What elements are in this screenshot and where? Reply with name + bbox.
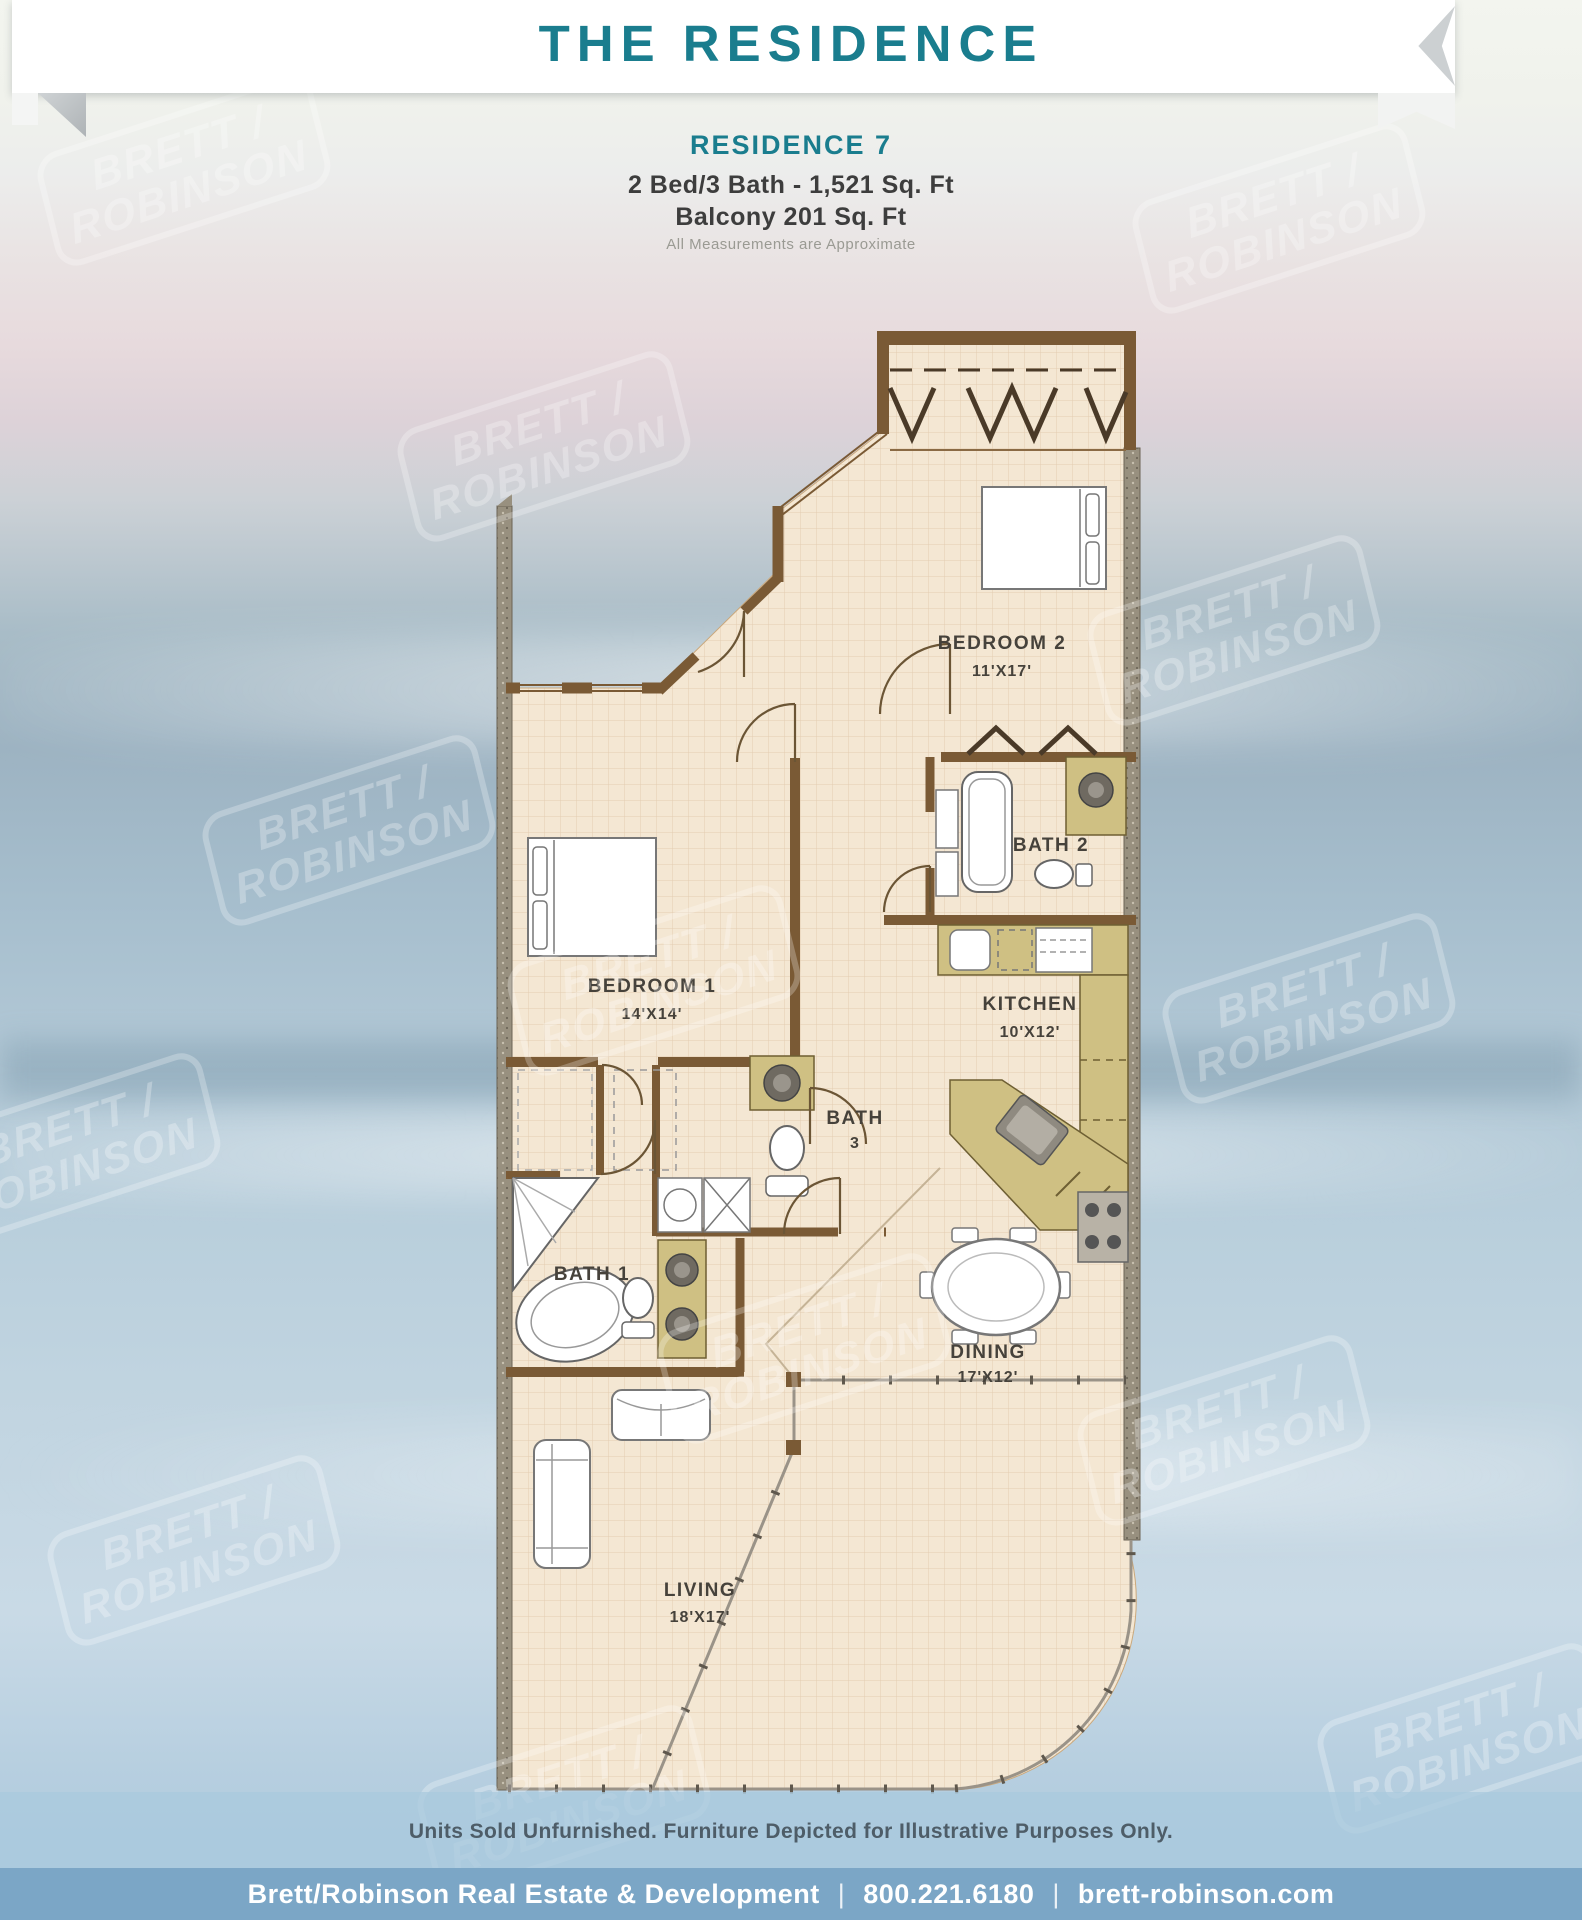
residence-name: RESIDENCE 7 bbox=[0, 130, 1582, 161]
toilet-icon bbox=[770, 1126, 804, 1170]
dining-label: DINING bbox=[950, 1342, 1026, 1363]
measurements-disclaimer: All Measurements are Approximate bbox=[0, 236, 1582, 253]
loveseat bbox=[612, 1390, 710, 1440]
bedroom2-label: BEDROOM 2 bbox=[938, 633, 1067, 654]
footer-website: brett-robinson.com bbox=[1078, 1879, 1335, 1910]
bath3-number: 3 bbox=[850, 1135, 860, 1152]
bed-bedroom2 bbox=[982, 487, 1106, 589]
footer-separator: | bbox=[838, 1879, 846, 1910]
page-title: THE RESIDENCE bbox=[0, 14, 1582, 73]
bedroom2-dims: 11'X17' bbox=[972, 663, 1032, 680]
toilet-icon bbox=[1035, 860, 1073, 888]
ribbon-tail-left bbox=[12, 93, 38, 125]
floor-plan: BEDROOM 2 11'X17' BATH 2 KITCHEN 10'X12'… bbox=[0, 0, 1582, 1920]
residence-specs: 2 Bed/3 Bath - 1,521 Sq. Ft bbox=[0, 171, 1582, 200]
kitchen-dims: 10'X12' bbox=[1000, 1024, 1061, 1041]
bath2-label: BATH 2 bbox=[1013, 835, 1089, 856]
flyer-page: BEDROOM 2 11'X17' BATH 2 KITCHEN 10'X12'… bbox=[0, 0, 1582, 1920]
footer-company: Brett/Robinson Real Estate & Development bbox=[248, 1879, 820, 1910]
stove-icon bbox=[1078, 1192, 1128, 1262]
laundry-fixtures bbox=[658, 1178, 750, 1232]
sofa bbox=[534, 1440, 590, 1568]
bath3-label: BATH bbox=[826, 1108, 883, 1129]
living-dims: 18'X17' bbox=[670, 1609, 731, 1626]
residence-balcony-area: Balcony 201 Sq. Ft bbox=[0, 203, 1582, 232]
bed-bedroom1 bbox=[528, 838, 656, 956]
kitchen-label: KITCHEN bbox=[983, 994, 1078, 1015]
footer-separator: | bbox=[1052, 1879, 1060, 1910]
footer-phone: 800.221.6180 bbox=[863, 1879, 1034, 1910]
bedroom1-dims: 14'X14' bbox=[622, 1006, 683, 1023]
bedroom1-label: BEDROOM 1 bbox=[588, 976, 717, 997]
dining-dims: 17'X12' bbox=[958, 1369, 1019, 1386]
footer-bar: Brett/Robinson Real Estate & Development… bbox=[0, 1868, 1582, 1920]
living-label: LIVING bbox=[664, 1580, 736, 1601]
furnishing-note: Units Sold Unfurnished. Furniture Depict… bbox=[0, 1820, 1582, 1844]
bath1-label: BATH 1 bbox=[554, 1264, 630, 1285]
